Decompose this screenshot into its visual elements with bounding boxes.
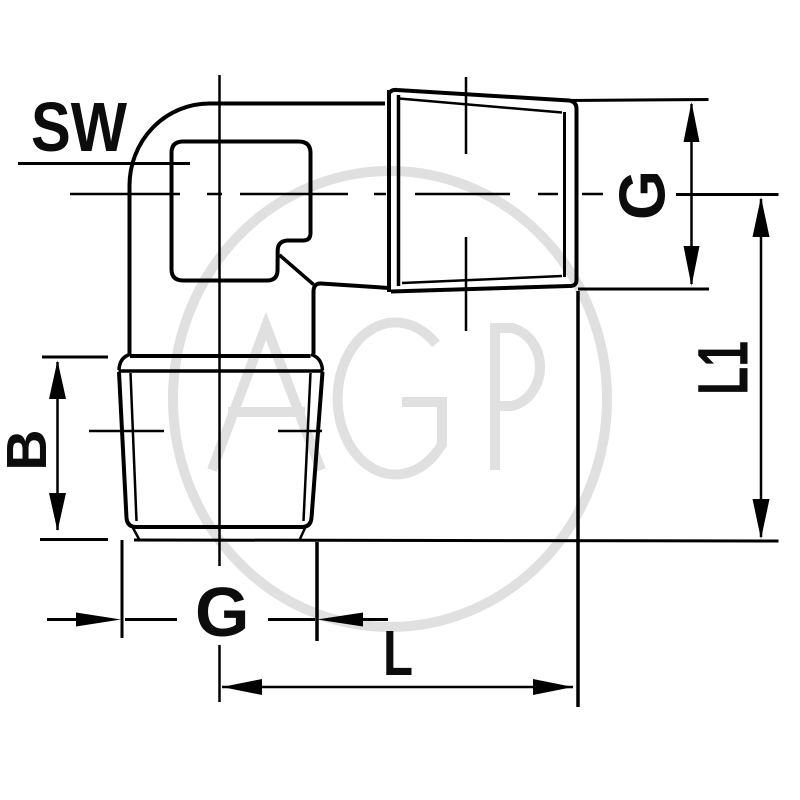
svg-text:G: G xyxy=(606,170,679,220)
svg-text:L1: L1 xyxy=(685,341,764,395)
svg-text:SW: SW xyxy=(31,88,127,166)
svg-text:G: G xyxy=(195,573,249,651)
svg-text:B: B xyxy=(0,429,59,470)
svg-text:L: L xyxy=(383,617,413,689)
